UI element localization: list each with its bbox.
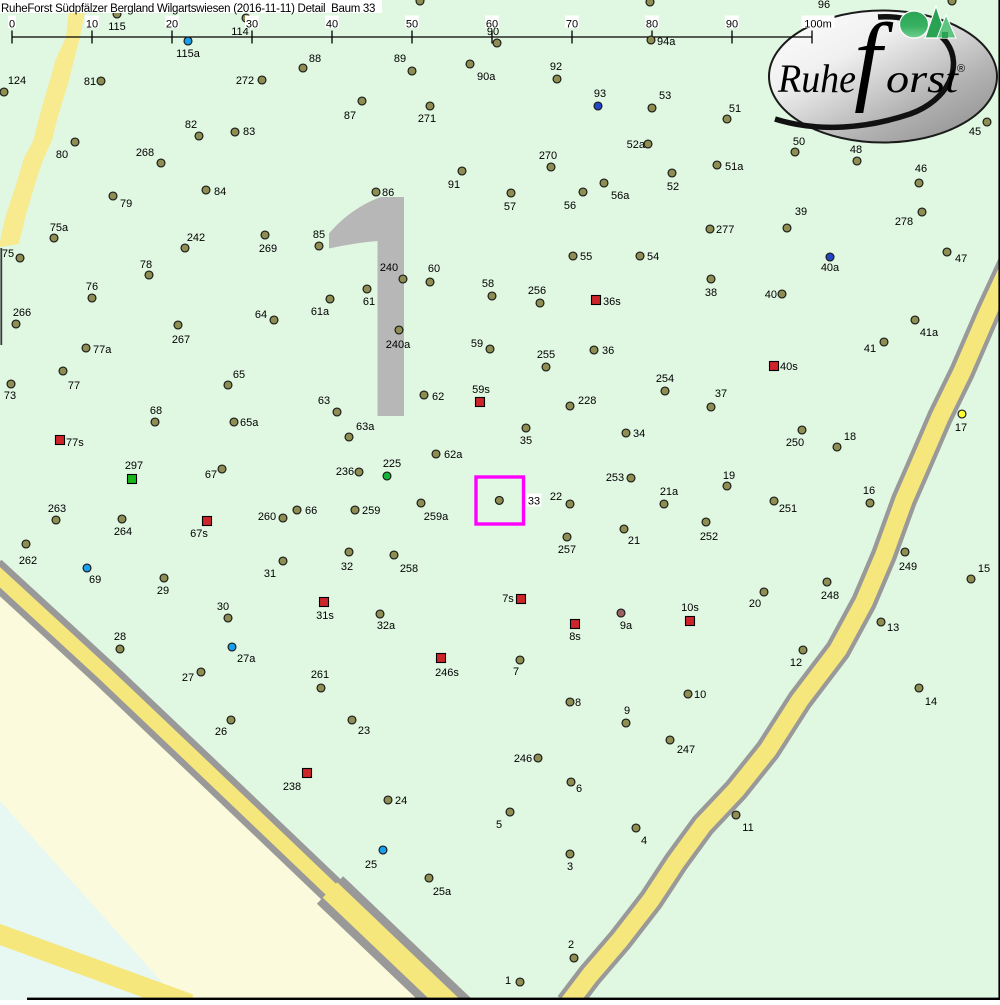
- svg-text:14: 14: [925, 696, 937, 708]
- svg-text:75a: 75a: [50, 222, 69, 234]
- svg-text:24: 24: [395, 795, 407, 807]
- svg-text:63a: 63a: [356, 421, 375, 433]
- svg-text:34: 34: [633, 428, 645, 440]
- svg-text:260: 260: [258, 511, 276, 523]
- svg-text:81: 81: [84, 76, 96, 88]
- svg-text:18: 18: [844, 431, 856, 443]
- svg-text:64: 64: [255, 309, 267, 321]
- svg-text:32a: 32a: [377, 620, 396, 632]
- svg-text:100m: 100m: [804, 19, 832, 31]
- svg-text:87: 87: [344, 110, 356, 122]
- svg-text:253: 253: [606, 472, 624, 484]
- svg-text:38: 38: [705, 287, 717, 299]
- svg-text:65a: 65a: [240, 417, 259, 429]
- svg-text:45: 45: [969, 126, 981, 138]
- svg-text:67: 67: [205, 469, 217, 481]
- svg-text:75: 75: [2, 248, 14, 260]
- svg-text:240: 240: [380, 262, 398, 274]
- svg-text:124: 124: [8, 75, 26, 87]
- svg-text:115a: 115a: [176, 48, 201, 60]
- svg-text:11: 11: [742, 822, 753, 834]
- svg-text:277: 277: [716, 224, 734, 236]
- svg-text:67s: 67s: [190, 528, 208, 540]
- svg-text:10: 10: [694, 689, 706, 701]
- svg-text:40: 40: [765, 289, 777, 301]
- svg-text:50: 50: [793, 136, 805, 148]
- svg-text:40s: 40s: [780, 361, 798, 373]
- svg-text:65: 65: [233, 369, 245, 381]
- svg-text:36s: 36s: [603, 296, 621, 308]
- svg-text:40: 40: [326, 19, 338, 31]
- svg-text:90: 90: [726, 19, 738, 31]
- svg-text:7: 7: [513, 666, 519, 678]
- svg-text:55: 55: [580, 251, 592, 263]
- svg-text:47: 47: [955, 253, 967, 265]
- svg-text:86: 86: [382, 187, 394, 199]
- svg-text:3: 3: [567, 861, 573, 873]
- svg-text:33: 33: [528, 496, 540, 508]
- svg-text:262: 262: [19, 555, 37, 567]
- svg-text:246s: 246s: [435, 667, 459, 679]
- svg-text:12: 12: [790, 657, 802, 669]
- svg-text:80: 80: [56, 149, 68, 161]
- svg-text:250: 250: [786, 437, 804, 449]
- svg-text:41a: 41a: [920, 327, 939, 339]
- svg-text:83: 83: [243, 126, 255, 138]
- svg-text:225: 225: [383, 458, 401, 470]
- svg-text:35: 35: [520, 435, 532, 447]
- svg-text:36: 36: [602, 345, 614, 357]
- svg-text:259: 259: [362, 505, 380, 517]
- svg-text:9a: 9a: [620, 620, 633, 632]
- svg-text:9: 9: [624, 705, 630, 717]
- svg-text:77: 77: [68, 380, 80, 392]
- svg-text:267: 267: [172, 334, 190, 346]
- svg-text:62a: 62a: [444, 449, 463, 461]
- svg-text:268: 268: [136, 147, 154, 159]
- svg-text:26: 26: [215, 726, 227, 738]
- svg-text:20: 20: [166, 19, 178, 31]
- svg-text:40a: 40a: [821, 262, 840, 274]
- svg-text:272: 272: [236, 75, 254, 87]
- svg-text:41: 41: [864, 343, 876, 355]
- svg-text:278: 278: [895, 216, 913, 228]
- svg-text:62: 62: [432, 391, 444, 403]
- svg-text:39: 39: [795, 206, 807, 218]
- svg-text:242: 242: [187, 232, 205, 244]
- svg-text:22: 22: [550, 491, 562, 503]
- svg-text:21a: 21a: [660, 486, 679, 498]
- svg-text:264: 264: [114, 526, 132, 538]
- svg-text:246: 246: [514, 753, 532, 765]
- svg-text:10: 10: [86, 19, 98, 31]
- svg-text:76: 76: [86, 281, 98, 293]
- svg-text:10s: 10s: [681, 602, 699, 614]
- svg-text:52: 52: [667, 181, 679, 193]
- svg-text:270: 270: [539, 150, 557, 162]
- svg-text:Ruhe: Ruhe: [777, 56, 856, 101]
- svg-text:63: 63: [318, 395, 330, 407]
- svg-text:57: 57: [504, 201, 516, 213]
- svg-text:82: 82: [185, 119, 197, 131]
- svg-text:258: 258: [400, 563, 418, 575]
- svg-text:85: 85: [313, 229, 325, 241]
- svg-text:7s: 7s: [502, 593, 514, 605]
- svg-text:259a: 259a: [424, 511, 449, 523]
- svg-text:30: 30: [246, 19, 258, 31]
- svg-text:248: 248: [821, 590, 839, 602]
- svg-text:59: 59: [471, 338, 483, 350]
- svg-text:240a: 240a: [386, 339, 411, 351]
- svg-text:77a: 77a: [93, 344, 112, 356]
- svg-text:orst: orst: [886, 56, 959, 101]
- svg-text:30: 30: [217, 601, 229, 613]
- svg-text:19: 19: [723, 470, 735, 482]
- svg-text:80: 80: [646, 19, 658, 31]
- svg-text:23: 23: [358, 725, 370, 737]
- svg-text:31: 31: [264, 568, 276, 580]
- svg-text:51: 51: [729, 103, 741, 115]
- svg-text:238: 238: [283, 781, 301, 793]
- svg-text:78: 78: [140, 259, 152, 271]
- svg-text:1: 1: [505, 975, 511, 987]
- svg-text:58: 58: [482, 278, 494, 290]
- svg-text:RuheForst Südpfälzer Bergland: RuheForst Südpfälzer Bergland Wilgartswi…: [1, 3, 375, 15]
- svg-text:66: 66: [305, 505, 317, 517]
- svg-text:8: 8: [575, 697, 581, 709]
- svg-text:68: 68: [150, 405, 162, 417]
- svg-text:21: 21: [628, 535, 640, 547]
- svg-text:13: 13: [887, 622, 899, 634]
- svg-text:256: 256: [528, 285, 546, 297]
- svg-text:32: 32: [341, 561, 353, 573]
- svg-text:254: 254: [656, 373, 674, 385]
- svg-text:70: 70: [566, 19, 578, 31]
- svg-text:25a: 25a: [433, 886, 452, 898]
- svg-text:27: 27: [182, 672, 194, 684]
- svg-text:88: 88: [309, 53, 321, 65]
- svg-text:52a: 52a: [627, 139, 646, 151]
- svg-text:4: 4: [641, 835, 647, 847]
- svg-text:50: 50: [406, 19, 418, 31]
- svg-text:27a: 27a: [237, 653, 256, 665]
- svg-text:61: 61: [363, 296, 375, 308]
- svg-text:2: 2: [568, 939, 574, 951]
- svg-text:53: 53: [659, 90, 671, 102]
- svg-text:56a: 56a: [611, 190, 630, 202]
- svg-text:16: 16: [863, 485, 875, 497]
- svg-text:79: 79: [120, 198, 132, 210]
- svg-text:297: 297: [125, 460, 143, 472]
- svg-text:96: 96: [818, 0, 830, 11]
- svg-text:54: 54: [647, 251, 659, 263]
- svg-text:115: 115: [108, 21, 126, 33]
- svg-text:93: 93: [594, 88, 606, 100]
- svg-text:28: 28: [114, 631, 126, 643]
- svg-text:90a: 90a: [477, 71, 496, 83]
- svg-text:261: 261: [311, 669, 329, 681]
- svg-text:60: 60: [428, 263, 440, 275]
- svg-text:252: 252: [700, 531, 718, 543]
- svg-text:37: 37: [715, 388, 727, 400]
- svg-text:6: 6: [576, 783, 582, 795]
- svg-text:255: 255: [537, 349, 555, 361]
- svg-text:8s: 8s: [569, 631, 581, 643]
- svg-text:269: 269: [259, 243, 277, 255]
- svg-text:51a: 51a: [725, 161, 744, 173]
- svg-text:271: 271: [418, 113, 436, 125]
- svg-text:257: 257: [558, 544, 576, 556]
- svg-text:73: 73: [4, 390, 16, 402]
- svg-text:249: 249: [899, 561, 917, 573]
- svg-text:56: 56: [564, 200, 576, 212]
- svg-text:89: 89: [394, 53, 406, 65]
- svg-text:236: 236: [336, 466, 354, 478]
- svg-text:84: 84: [214, 186, 226, 198]
- svg-text:69: 69: [89, 574, 101, 586]
- svg-text:61a: 61a: [311, 306, 330, 318]
- svg-text:48: 48: [850, 144, 862, 156]
- svg-text:25: 25: [365, 859, 377, 871]
- svg-text:251: 251: [779, 503, 797, 515]
- svg-text:59s: 59s: [472, 384, 490, 396]
- svg-text:46: 46: [915, 163, 927, 175]
- svg-text:20: 20: [749, 598, 761, 610]
- svg-text:15: 15: [978, 563, 990, 575]
- svg-text:263: 263: [48, 503, 66, 515]
- svg-text:29: 29: [157, 585, 169, 597]
- svg-text:247: 247: [677, 744, 695, 756]
- svg-text:228: 228: [578, 395, 596, 407]
- svg-text:94a: 94a: [657, 36, 676, 48]
- svg-text:77s: 77s: [66, 437, 84, 449]
- svg-text:5: 5: [496, 819, 502, 831]
- svg-text:60: 60: [486, 19, 498, 31]
- svg-text:17: 17: [955, 422, 967, 434]
- svg-text:®: ®: [957, 63, 965, 75]
- svg-text:31s: 31s: [316, 610, 334, 622]
- svg-text:0: 0: [9, 19, 15, 31]
- svg-text:266: 266: [13, 307, 31, 319]
- svg-text:92: 92: [550, 61, 562, 73]
- svg-text:91: 91: [448, 179, 460, 191]
